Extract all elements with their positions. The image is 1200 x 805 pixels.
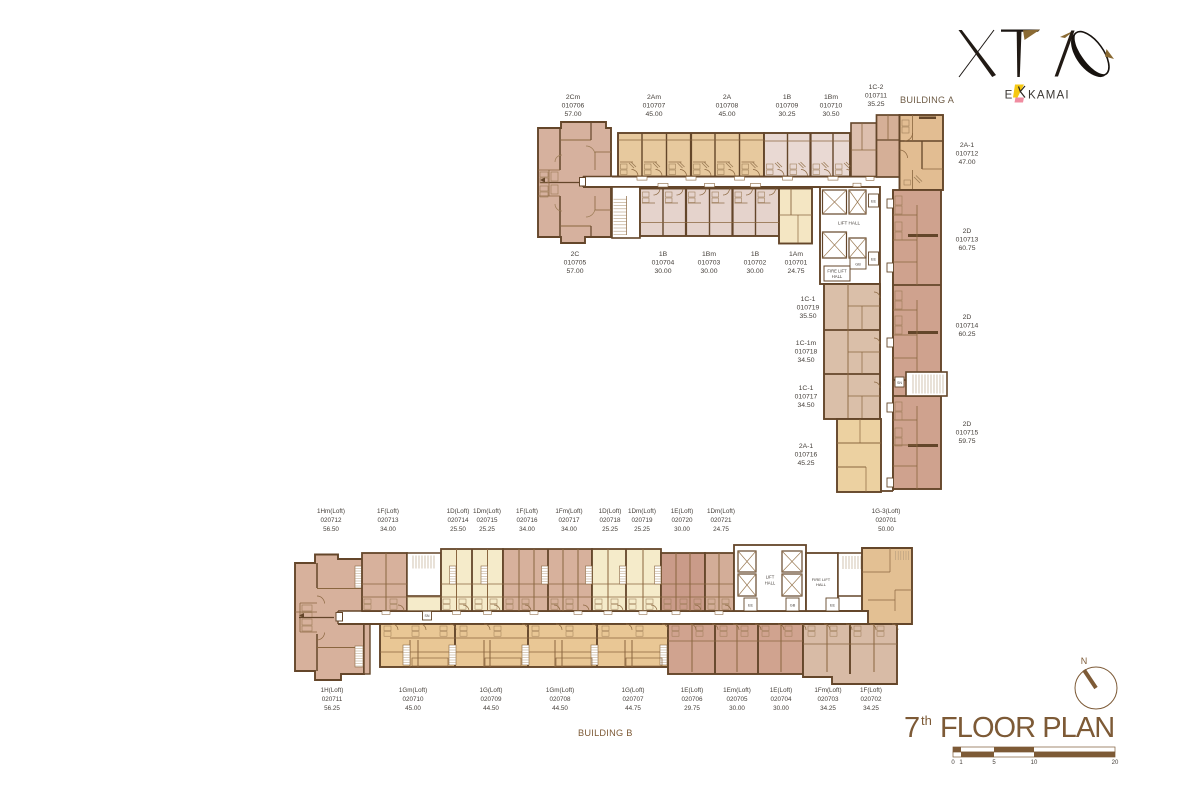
svg-text:56.50: 56.50 xyxy=(323,526,339,533)
svg-text:1C-1: 1C-1 xyxy=(799,385,814,392)
svg-text:50.00: 50.00 xyxy=(878,526,894,533)
svg-text:th: th xyxy=(921,713,932,728)
svg-text:010708: 010708 xyxy=(716,103,739,110)
svg-text:34.00: 34.00 xyxy=(380,526,396,533)
svg-text:1Fm(Loft): 1Fm(Loft) xyxy=(555,508,582,515)
svg-text:020720: 020720 xyxy=(671,517,693,524)
svg-text:2A-1: 2A-1 xyxy=(799,443,814,450)
svg-text:020717: 020717 xyxy=(558,517,580,524)
svg-text:020703: 020703 xyxy=(817,696,839,703)
svg-text:30.00: 30.00 xyxy=(700,268,717,275)
svg-text:1D(Loft): 1D(Loft) xyxy=(599,508,622,515)
svg-text:1Bm: 1Bm xyxy=(824,94,838,101)
svg-text:44.75: 44.75 xyxy=(625,705,641,712)
svg-text:020709: 020709 xyxy=(480,696,502,703)
svg-text:30.00: 30.00 xyxy=(654,268,671,275)
svg-text:HALL: HALL xyxy=(832,274,843,279)
svg-text:020714: 020714 xyxy=(447,517,469,524)
svg-text:KAMAI: KAMAI xyxy=(1028,90,1070,102)
svg-text:HALL: HALL xyxy=(765,581,776,586)
svg-text:25.25: 25.25 xyxy=(479,526,495,533)
svg-text:EE: EE xyxy=(871,258,877,262)
svg-text:1G-3(Loft): 1G-3(Loft) xyxy=(872,508,901,515)
svg-text:34.25: 34.25 xyxy=(820,705,836,712)
svg-text:1C-1: 1C-1 xyxy=(801,296,816,303)
svg-text:GB: GB xyxy=(790,604,796,608)
svg-text:010714: 010714 xyxy=(956,323,979,330)
svg-text:30.00: 30.00 xyxy=(773,705,789,712)
svg-text:1Gm(Loft): 1Gm(Loft) xyxy=(546,687,574,694)
svg-text:020706: 020706 xyxy=(681,696,703,703)
svg-text:SN: SN xyxy=(425,614,430,618)
svg-text:34.00: 34.00 xyxy=(561,526,577,533)
svg-text:010705: 010705 xyxy=(564,260,587,267)
svg-text:010702: 010702 xyxy=(744,260,767,267)
svg-text:2Am: 2Am xyxy=(647,94,661,101)
svg-text:010716: 010716 xyxy=(795,452,818,459)
svg-text:24.75: 24.75 xyxy=(787,268,804,275)
svg-text:1G(Loft): 1G(Loft) xyxy=(479,687,502,694)
svg-text:44.50: 44.50 xyxy=(483,705,499,712)
svg-text:020705: 020705 xyxy=(726,696,748,703)
svg-text:1Bm: 1Bm xyxy=(702,251,716,258)
svg-text:2C: 2C xyxy=(571,251,580,258)
svg-text:010719: 010719 xyxy=(797,305,820,312)
svg-text:010706: 010706 xyxy=(562,103,585,110)
svg-text:010701: 010701 xyxy=(785,260,808,267)
svg-text:47.00: 47.00 xyxy=(958,159,975,166)
svg-text:020716: 020716 xyxy=(516,517,538,524)
svg-text:020708: 020708 xyxy=(549,696,571,703)
svg-text:25.25: 25.25 xyxy=(634,526,650,533)
svg-text:1H(Loft): 1H(Loft) xyxy=(321,687,344,694)
svg-text:1F(Loft): 1F(Loft) xyxy=(377,508,399,515)
svg-text:30.50: 30.50 xyxy=(822,111,839,118)
svg-text:010717: 010717 xyxy=(795,394,818,401)
svg-text:020702: 020702 xyxy=(860,696,882,703)
svg-text:SN: SN xyxy=(897,381,902,385)
svg-text:LIFT: LIFT xyxy=(766,575,775,580)
svg-text:1Gm(Loft): 1Gm(Loft) xyxy=(399,687,427,694)
svg-text:60.75: 60.75 xyxy=(958,245,975,252)
svg-text:010715: 010715 xyxy=(956,430,979,437)
svg-text:25.50: 25.50 xyxy=(450,526,466,533)
svg-text:GB: GB xyxy=(855,263,861,267)
svg-text:24.75: 24.75 xyxy=(713,526,729,533)
svg-text:EE: EE xyxy=(830,604,836,608)
svg-text:010712: 010712 xyxy=(956,151,979,158)
svg-text:020711: 020711 xyxy=(322,696,343,703)
svg-text:1C-2: 1C-2 xyxy=(869,84,884,91)
svg-text:1E(Loft): 1E(Loft) xyxy=(770,687,792,694)
svg-text:57.00: 57.00 xyxy=(566,268,583,275)
svg-text:2A-1: 2A-1 xyxy=(960,142,975,149)
svg-text:1G(Loft): 1G(Loft) xyxy=(621,687,644,694)
svg-text:45.00: 45.00 xyxy=(718,111,735,118)
svg-text:020701: 020701 xyxy=(875,517,897,524)
svg-text:010718: 010718 xyxy=(795,349,818,356)
svg-text:020721: 020721 xyxy=(710,517,732,524)
svg-text:2D: 2D xyxy=(963,314,972,321)
svg-text:59.75: 59.75 xyxy=(958,438,975,445)
svg-text:1F(Loft): 1F(Loft) xyxy=(516,508,538,515)
svg-text:FIRE LIFT: FIRE LIFT xyxy=(827,269,847,274)
svg-text:30.00: 30.00 xyxy=(674,526,690,533)
svg-text:35.25: 35.25 xyxy=(867,101,884,108)
svg-text:2Cm: 2Cm xyxy=(566,94,581,101)
svg-text:1D(Loft): 1D(Loft) xyxy=(447,508,470,515)
svg-text:020704: 020704 xyxy=(770,696,792,703)
svg-text:BUILDING A: BUILDING A xyxy=(900,95,955,105)
svg-text:2D: 2D xyxy=(963,421,972,428)
svg-text:29.75: 29.75 xyxy=(684,705,700,712)
svg-text:1E(Loft): 1E(Loft) xyxy=(671,508,693,515)
svg-text:020718: 020718 xyxy=(599,517,621,524)
svg-text:2D: 2D xyxy=(963,228,972,235)
svg-text:010711: 010711 xyxy=(865,93,887,100)
svg-text:020712: 020712 xyxy=(320,517,342,524)
svg-text:HALL: HALL xyxy=(816,582,827,587)
svg-text:30.25: 30.25 xyxy=(778,111,795,118)
svg-text:34.50: 34.50 xyxy=(797,357,814,364)
svg-text:020713: 020713 xyxy=(377,517,399,524)
svg-text:2A: 2A xyxy=(723,94,732,101)
svg-text:57.00: 57.00 xyxy=(564,111,581,118)
svg-text:BUILDING B: BUILDING B xyxy=(578,728,633,738)
svg-text:1C-1m: 1C-1m xyxy=(796,340,817,347)
svg-text:1F(Loft): 1F(Loft) xyxy=(860,687,882,694)
svg-text:60.25: 60.25 xyxy=(958,331,975,338)
svg-text:010704: 010704 xyxy=(652,260,675,267)
svg-text:1Fm(Loft): 1Fm(Loft) xyxy=(814,687,841,694)
svg-text:45.00: 45.00 xyxy=(645,111,662,118)
svg-text:1Dm(Loft): 1Dm(Loft) xyxy=(473,508,501,515)
svg-text:10: 10 xyxy=(1031,760,1038,766)
svg-text:1Am: 1Am xyxy=(789,251,803,258)
svg-text:E: E xyxy=(1005,90,1013,102)
svg-text:1Dm(Loft): 1Dm(Loft) xyxy=(707,508,735,515)
svg-text:020719: 020719 xyxy=(631,517,653,524)
svg-text:010713: 010713 xyxy=(956,237,979,244)
svg-text:020710: 020710 xyxy=(402,696,424,703)
svg-text:35.50: 35.50 xyxy=(799,313,816,320)
svg-text:34.25: 34.25 xyxy=(863,705,879,712)
svg-text:34.00: 34.00 xyxy=(519,526,535,533)
svg-text:25.25: 25.25 xyxy=(602,526,618,533)
svg-text:010707: 010707 xyxy=(643,103,666,110)
svg-text:30.00: 30.00 xyxy=(746,268,763,275)
svg-text:020715: 020715 xyxy=(476,517,498,524)
svg-text:7: 7 xyxy=(904,712,920,744)
svg-text:34.50: 34.50 xyxy=(797,402,814,409)
svg-text:1Em(Loft): 1Em(Loft) xyxy=(723,687,751,694)
svg-text:1Dm(Loft): 1Dm(Loft) xyxy=(628,508,656,515)
svg-text:N: N xyxy=(1081,656,1088,666)
svg-text:EE: EE xyxy=(871,200,877,204)
svg-text:20: 20 xyxy=(1112,760,1119,766)
svg-text:020707: 020707 xyxy=(622,696,644,703)
svg-text:FLOOR PLAN: FLOOR PLAN xyxy=(940,712,1114,744)
svg-text:1Hm(Loft): 1Hm(Loft) xyxy=(317,508,345,515)
svg-text:LIFT HALL: LIFT HALL xyxy=(838,221,861,226)
svg-text:1B: 1B xyxy=(783,94,792,101)
svg-text:010710: 010710 xyxy=(820,103,843,110)
svg-text:45.00: 45.00 xyxy=(405,705,421,712)
svg-text:1E(Loft): 1E(Loft) xyxy=(681,687,703,694)
svg-text:44.50: 44.50 xyxy=(552,705,568,712)
svg-text:010709: 010709 xyxy=(776,103,799,110)
svg-text:1B: 1B xyxy=(659,251,668,258)
svg-text:30.00: 30.00 xyxy=(729,705,745,712)
svg-text:56.25: 56.25 xyxy=(324,705,340,712)
svg-text:1B: 1B xyxy=(751,251,760,258)
svg-text:EE: EE xyxy=(748,604,754,608)
svg-text:010703: 010703 xyxy=(698,260,721,267)
svg-text:45.25: 45.25 xyxy=(797,460,814,467)
